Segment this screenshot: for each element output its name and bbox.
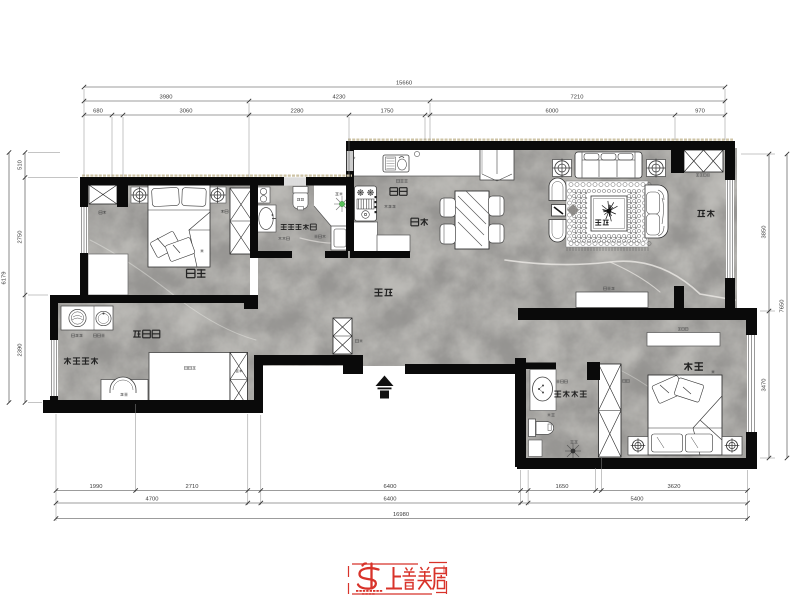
svg-text:15660: 15660 xyxy=(396,81,412,87)
svg-text:510: 510 xyxy=(18,160,24,170)
svg-text:680: 680 xyxy=(93,109,103,115)
svg-text:5400: 5400 xyxy=(631,497,644,503)
svg-text:970: 970 xyxy=(695,109,705,115)
svg-text:1750: 1750 xyxy=(381,109,394,115)
svg-text:3620: 3620 xyxy=(668,484,681,490)
svg-text:1990: 1990 xyxy=(90,484,103,490)
svg-text:3980: 3980 xyxy=(160,95,173,101)
svg-text:6179: 6179 xyxy=(2,272,8,285)
svg-text:4700: 4700 xyxy=(146,497,159,503)
svg-text:2710: 2710 xyxy=(186,484,199,490)
svg-text:4230: 4230 xyxy=(333,95,346,101)
svg-text:3850: 3850 xyxy=(762,226,768,239)
svg-text:2750: 2750 xyxy=(18,231,24,244)
svg-text:6000: 6000 xyxy=(546,109,559,115)
svg-text:7210: 7210 xyxy=(571,95,584,101)
svg-text:3060: 3060 xyxy=(180,109,193,115)
svg-text:1650: 1650 xyxy=(556,484,569,490)
svg-text:2390: 2390 xyxy=(18,344,24,357)
svg-text:2280: 2280 xyxy=(291,109,304,115)
svg-text:16980: 16980 xyxy=(393,512,409,518)
svg-text:3470: 3470 xyxy=(762,379,768,392)
svg-text:7650: 7650 xyxy=(780,300,786,313)
svg-text:6400: 6400 xyxy=(384,497,397,503)
svg-text:6400: 6400 xyxy=(384,484,397,490)
